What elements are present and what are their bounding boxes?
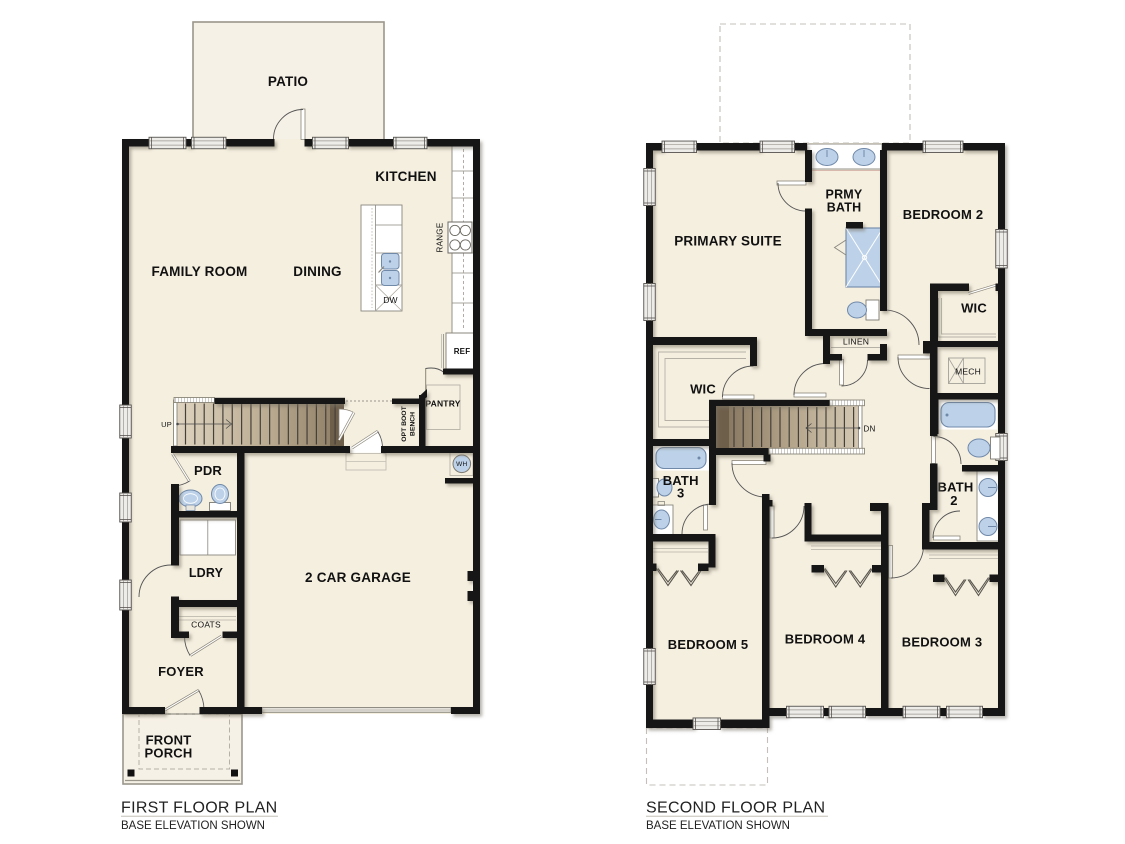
svg-text:LDRY: LDRY (189, 566, 224, 580)
svg-text:SECOND FLOOR PLAN: SECOND FLOOR PLAN (646, 800, 825, 817)
svg-text:PDR: PDR (194, 463, 222, 478)
svg-text:MECH: MECH (955, 367, 981, 377)
svg-text:BATH: BATH (827, 201, 862, 215)
svg-text:DW: DW (383, 295, 398, 305)
svg-text:BASE ELEVATION SHOWN: BASE ELEVATION SHOWN (646, 820, 790, 832)
svg-text:WIC: WIC (690, 382, 716, 397)
svg-text:2 CAR GARAGE: 2 CAR GARAGE (305, 570, 411, 585)
svg-text:WIC: WIC (961, 301, 987, 316)
svg-text:WH: WH (456, 461, 467, 468)
svg-text:FAMILY ROOM: FAMILY ROOM (152, 264, 248, 279)
svg-text:PRMY: PRMY (826, 188, 863, 202)
svg-text:COATS: COATS (191, 620, 221, 630)
svg-text:BEDROOM 4: BEDROOM 4 (785, 632, 866, 647)
svg-text:OPT BOOT: OPT BOOT (401, 405, 408, 441)
svg-text:UP: UP (161, 420, 172, 429)
svg-text:DINING: DINING (293, 264, 341, 279)
svg-text:REF: REF (454, 347, 471, 356)
svg-text:FOYER: FOYER (158, 664, 204, 679)
svg-text:BEDROOM 2: BEDROOM 2 (903, 207, 984, 222)
svg-text:BEDROOM 3: BEDROOM 3 (902, 635, 983, 650)
svg-text:2: 2 (950, 493, 957, 508)
svg-text:RANGE: RANGE (436, 223, 445, 253)
svg-text:BASE ELEVATION SHOWN: BASE ELEVATION SHOWN (121, 820, 265, 832)
svg-text:KITCHEN: KITCHEN (375, 169, 436, 184)
svg-text:BENCH: BENCH (410, 412, 417, 436)
svg-text:FIRST FLOOR PLAN: FIRST FLOOR PLAN (121, 800, 278, 817)
svg-text:DN: DN (864, 425, 876, 434)
svg-text:3: 3 (677, 486, 684, 501)
svg-text:PATIO: PATIO (268, 74, 308, 89)
svg-text:LINEN: LINEN (843, 337, 869, 347)
svg-text:PANTRY: PANTRY (425, 399, 460, 409)
svg-text:BEDROOM 5: BEDROOM 5 (668, 637, 749, 652)
svg-text:PORCH: PORCH (145, 746, 193, 761)
svg-text:PRIMARY SUITE: PRIMARY SUITE (674, 234, 782, 249)
